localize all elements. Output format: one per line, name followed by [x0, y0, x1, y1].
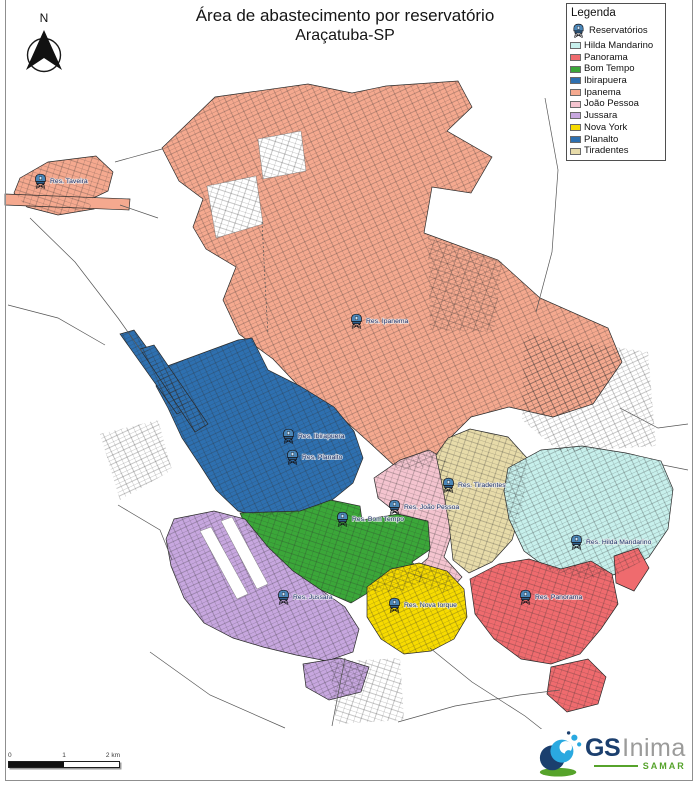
reservoir-label: Res. Planalto	[302, 454, 343, 461]
legend-swatch	[570, 77, 581, 84]
legend-item: Jussara	[570, 110, 662, 122]
logo-green-line	[594, 765, 638, 767]
legend-item: Ibirapuera	[570, 75, 662, 87]
reservoir-label: Res. Hilda Mandarino	[586, 539, 652, 546]
legend: Legenda Reservatórios Hilda Mandarino Pa…	[566, 3, 666, 161]
legend-item-label: Jussara	[584, 110, 617, 122]
scale-bar-segment-empty	[64, 762, 119, 767]
legend-item: Bom Tempo	[570, 63, 662, 75]
scale-tick-start: 0	[8, 752, 12, 759]
reservoir-label: Res. Panorama	[535, 594, 582, 601]
legend-item: Ipanema	[570, 87, 662, 99]
reservoir-label: Res. Nova Iorque	[404, 602, 457, 609]
logo-samar-text: SAMAR	[643, 761, 686, 771]
legend-item: Hilda Mandarino	[570, 40, 662, 52]
reservoir-label: Res. Tiradentes	[458, 482, 506, 489]
logo-gs-text: GS	[585, 736, 620, 760]
legend-swatch	[570, 101, 581, 108]
logo-inima-text: Inima	[622, 736, 686, 760]
reservoir-tower-icon	[390, 500, 400, 515]
map-title-line1: Área de abastecimento por reservatório	[110, 5, 580, 26]
scale-bar-segments	[8, 761, 120, 768]
legend-swatch	[570, 148, 581, 155]
reservoir-label: Res. Ibirapuera	[298, 433, 345, 440]
legend-item: João Pessoa	[570, 98, 662, 110]
water-tower-icon	[572, 23, 585, 38]
reservoir-label: Res. João Pessoa	[404, 504, 459, 511]
reservoir-label: Res. Bom Tempo	[352, 516, 404, 523]
legend-swatch	[570, 136, 581, 143]
reservoir-label: Res. Ipanema	[366, 318, 409, 325]
legend-reservoirs-row: Reservatórios	[572, 23, 662, 38]
legend-item-label: Nova York	[584, 122, 627, 134]
north-arrow-pointer	[26, 30, 62, 70]
legend-swatch	[570, 112, 581, 119]
legend-item-label: Planalto	[584, 134, 618, 146]
reservoir-tower-icon	[36, 174, 46, 189]
legend-item-label: Bom Tempo	[584, 63, 635, 75]
legend-item-label: Tiradentes	[584, 145, 629, 157]
scale-bar-segment-filled	[9, 762, 64, 767]
scale-tick-mid: 1	[62, 752, 66, 759]
legend-swatch	[570, 124, 581, 131]
gs-inima-samar-logo: GS Inima SAMAR	[537, 729, 687, 778]
legend-item-label: Hilda Mandarino	[584, 40, 653, 52]
gs-inima-logo-text: GS Inima SAMAR	[585, 736, 686, 771]
legend-swatch	[570, 42, 581, 49]
map-title-line2: Araçatuba-SP	[110, 26, 580, 46]
legend-swatch	[570, 66, 581, 73]
legend-item: Planalto	[570, 134, 662, 146]
legend-item-label: Ipanema	[584, 87, 621, 99]
reservoir-label: Res. Taveira	[50, 178, 88, 185]
legend-swatch	[570, 54, 581, 61]
legend-title: Legenda	[571, 7, 662, 19]
legend-item-label: Panorama	[584, 52, 628, 64]
legend-item: Nova York	[570, 122, 662, 134]
north-arrow: N	[26, 11, 62, 72]
legend-item-label: João Pessoa	[584, 98, 639, 110]
scale-tick-end: 2 km	[106, 752, 120, 759]
map-page: N Res. TaveiraRes. IpanemaRes. Ibirapuer…	[0, 0, 696, 790]
legend-reservoirs-label: Reservatórios	[589, 25, 648, 36]
north-arrow-label: N	[40, 11, 49, 25]
gs-inima-drop-icon	[537, 730, 583, 778]
legend-item-label: Ibirapuera	[584, 75, 627, 87]
scale-bar-labels: 0 1 2 km	[8, 752, 120, 761]
legend-swatch	[570, 89, 581, 96]
legend-item: Panorama	[570, 52, 662, 64]
reservoir-label: Res. Jussara	[293, 594, 333, 601]
scale-bar: 0 1 2 km	[8, 752, 120, 768]
legend-item: Tiradentes	[570, 145, 662, 157]
map-title: Área de abastecimento por reservatório A…	[110, 5, 580, 46]
